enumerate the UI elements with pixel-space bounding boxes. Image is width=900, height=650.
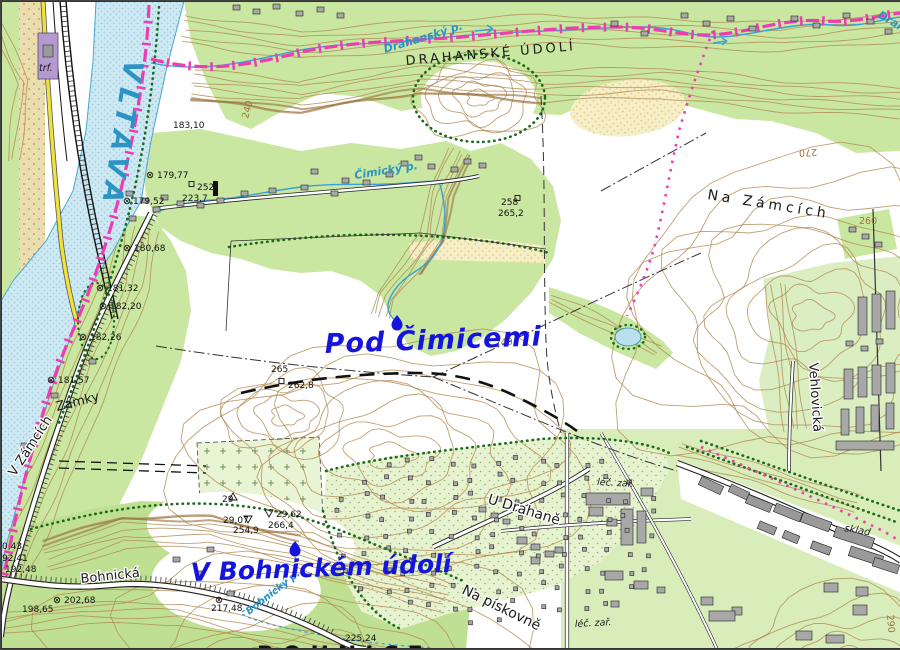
note-label-lec-zar-1: léč. zař.: [597, 477, 634, 490]
spot-elevation: 217,48: [211, 604, 243, 614]
map-canvas: 183,10179,77252223,7179,52180,68181,3218…: [1, 1, 900, 649]
spot-elevation: 198,65: [22, 605, 54, 615]
spot-elevation: 265: [271, 365, 288, 375]
spot-elevation: 29,62: [276, 510, 302, 520]
spot-elevation: 0,43: [2, 542, 22, 552]
spot-elevation: 182,26: [90, 333, 122, 343]
spot-elevation: 266,4: [268, 521, 294, 531]
spot-elevation: 254,9: [233, 526, 259, 536]
spot-elevation: 265,2: [498, 209, 524, 219]
spot-elevation: 181,57: [58, 376, 90, 386]
spot-elevation: 252: [197, 183, 214, 193]
spot-elevation: 192,48: [5, 565, 37, 575]
spot-elevation: 262,8: [288, 381, 314, 391]
spot-elevation: 180,68: [134, 244, 166, 254]
contour-elevation-label: 270: [799, 146, 818, 158]
spot-elevation: 182,20: [110, 302, 142, 312]
spot-elevation: 258: [501, 198, 518, 208]
note-label-lec-zar-2: léč. zař.: [575, 617, 612, 630]
spot-elevation: 183,10: [173, 121, 205, 131]
spot-elevation: 92,41: [2, 554, 28, 564]
spot-elevation: 202,68: [64, 596, 96, 606]
topographic-map: 183,10179,77252223,7179,52180,68181,3218…: [0, 0, 900, 650]
contour-elevation-label: 260: [859, 216, 877, 227]
spot-elevation: 179,52: [133, 197, 165, 207]
spot-elevation: 181,32: [107, 284, 139, 294]
contour-elevation-label: 290: [884, 614, 897, 633]
spot-elevation: 223,7: [182, 194, 208, 204]
note-label-trf: trf.: [39, 63, 53, 74]
spot-elevation: 179,77: [157, 171, 189, 181]
